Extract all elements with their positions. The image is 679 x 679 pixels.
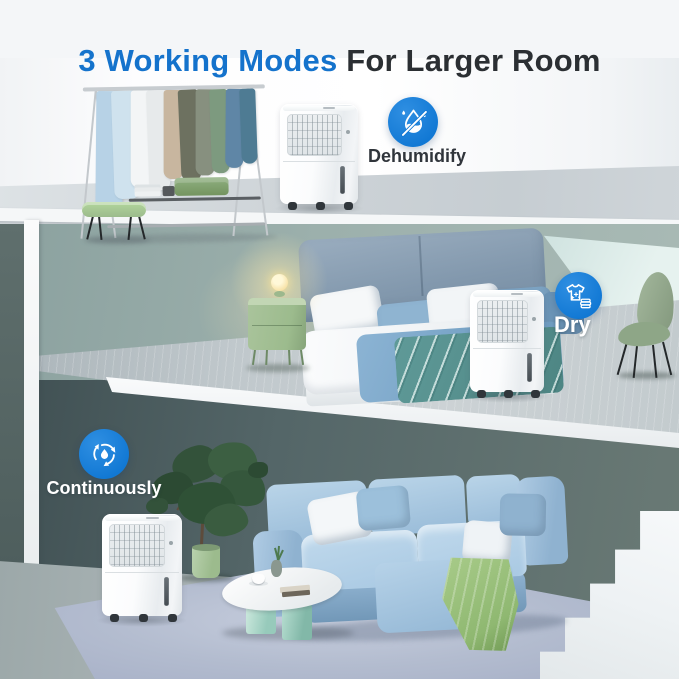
dehumidifier-unit-laundry bbox=[280, 104, 358, 210]
caster-wheel bbox=[288, 202, 297, 210]
caster-wheel bbox=[168, 614, 177, 622]
unit-grille bbox=[477, 300, 529, 343]
chair bbox=[612, 272, 679, 380]
unit-indicator bbox=[346, 130, 350, 134]
caster-wheel bbox=[531, 390, 540, 398]
unit-seam bbox=[283, 161, 355, 162]
caster-wheel bbox=[139, 614, 148, 622]
hanging-garment bbox=[239, 88, 258, 164]
title-highlight: 3 Working Modes bbox=[78, 43, 337, 78]
table-vase bbox=[271, 560, 282, 577]
nightstand-leg bbox=[265, 350, 268, 365]
nightstand bbox=[246, 268, 310, 372]
continuous-cycle-drop-icon bbox=[87, 437, 122, 472]
unit-seam bbox=[105, 572, 179, 573]
coffee-table bbox=[222, 566, 354, 644]
sofa-throw-green bbox=[440, 554, 521, 654]
bench-cushion bbox=[82, 202, 146, 217]
plant-foliage bbox=[146, 498, 168, 514]
chair-shadow bbox=[618, 372, 676, 379]
nightstand-leg bbox=[252, 350, 256, 365]
nightstand-leg bbox=[288, 350, 291, 365]
page-title: 3 Working Modes For Larger Room bbox=[0, 43, 679, 79]
bench-leg bbox=[86, 216, 93, 240]
nightstand-top bbox=[248, 298, 306, 305]
unit-grille bbox=[109, 524, 165, 567]
sofa-pillow-blue bbox=[500, 493, 547, 536]
dehumidify-drop-slash-icon bbox=[396, 105, 431, 140]
nightstand-leg bbox=[300, 350, 304, 365]
folded-clothes-stack bbox=[134, 184, 160, 196]
chair-leg bbox=[662, 342, 672, 375]
caster-wheel bbox=[316, 202, 325, 210]
caster-wheel bbox=[504, 390, 513, 398]
folded-item bbox=[163, 186, 175, 196]
caster-wheel bbox=[110, 614, 119, 622]
water-level-window bbox=[340, 166, 345, 194]
unit-top bbox=[473, 292, 541, 297]
continuously-label: Continuously bbox=[38, 478, 170, 499]
water-level-window bbox=[527, 353, 532, 382]
caster-wheel bbox=[477, 390, 486, 398]
unit-body bbox=[470, 290, 544, 392]
bench bbox=[82, 196, 152, 244]
unit-handle bbox=[511, 293, 523, 295]
unit-indicator bbox=[532, 317, 536, 321]
dehumidify-label: Dehumidify bbox=[368, 146, 478, 167]
nightstand-shadow bbox=[246, 364, 310, 372]
lamp-base bbox=[274, 291, 285, 297]
unit-body bbox=[102, 514, 182, 616]
nightstand-body bbox=[248, 298, 306, 350]
dry-label: Dry bbox=[554, 312, 591, 338]
chair-leg bbox=[617, 342, 628, 375]
dehumidifier-unit-livingroom bbox=[102, 514, 182, 622]
drawer-seam bbox=[252, 325, 302, 326]
bench-shadow bbox=[84, 236, 150, 244]
sofa-pillow-blue bbox=[356, 485, 411, 531]
unit-grille bbox=[287, 114, 342, 156]
left-wall-cutaway bbox=[24, 220, 39, 588]
unit-seam bbox=[473, 348, 541, 349]
continuously-badge bbox=[79, 429, 129, 479]
product-scene: Dehumidify Dry Continuou bbox=[0, 0, 679, 679]
title-rest: For Larger Room bbox=[337, 43, 600, 78]
unit-top bbox=[105, 516, 179, 521]
ball-lamp bbox=[271, 274, 288, 291]
caster-wheel bbox=[344, 202, 353, 210]
water-level-window bbox=[164, 577, 169, 606]
unit-handle bbox=[146, 517, 159, 519]
plant-foliage bbox=[248, 462, 268, 478]
dry-clean-shirt-icon bbox=[562, 279, 595, 312]
dehumidifier-unit-bedroom bbox=[470, 290, 544, 398]
folded-green-pile bbox=[174, 177, 228, 196]
left-wall-section bbox=[0, 224, 26, 590]
plant-pot-rim bbox=[192, 544, 220, 551]
unit-handle bbox=[323, 107, 335, 109]
bench-leg bbox=[138, 216, 145, 240]
unit-body bbox=[280, 104, 358, 204]
dehumidify-badge bbox=[388, 97, 438, 147]
unit-top bbox=[283, 106, 355, 111]
unit-indicator bbox=[169, 541, 173, 545]
